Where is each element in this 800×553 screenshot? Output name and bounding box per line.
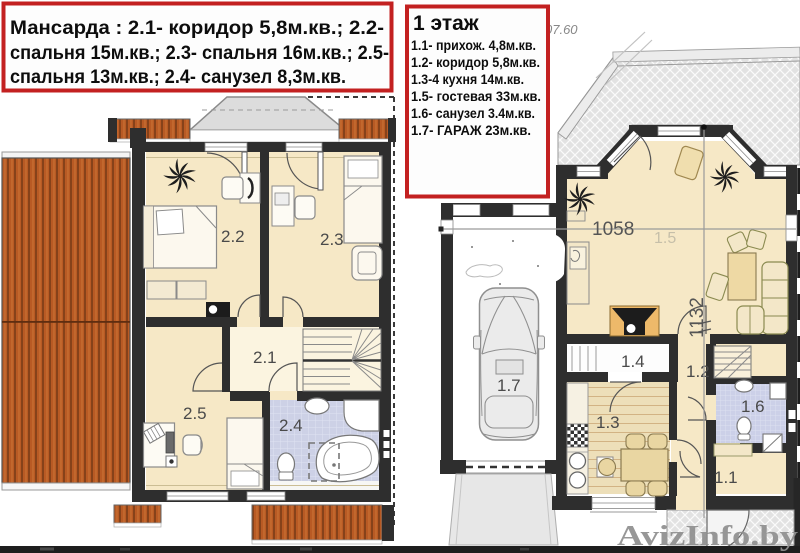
svg-text:2.3: 2.3 xyxy=(320,230,344,249)
svg-text:1.2- коридор 5,8м.кв.: 1.2- коридор 5,8м.кв. xyxy=(411,55,540,70)
svg-text:1.6: 1.6 xyxy=(741,397,765,416)
svg-text:1.1- прихож. 4,8м.кв.: 1.1- прихож. 4,8м.кв. xyxy=(411,38,536,53)
svg-text:2.5: 2.5 xyxy=(183,404,207,423)
svg-text:1 этаж: 1 этаж xyxy=(413,12,480,35)
svg-text:1.1: 1.1 xyxy=(714,468,738,487)
svg-text:2.1: 2.1 xyxy=(253,348,277,367)
svg-text:1.7- ГАРАЖ 23м.кв.: 1.7- ГАРАЖ 23м.кв. xyxy=(411,123,531,138)
svg-text:спальня 15м.кв.; 2.3- спальня: спальня 15м.кв.; 2.3- спальня 16м.кв.; 2… xyxy=(10,43,389,64)
svg-text:1.6- санузел 3.4м.кв.: 1.6- санузел 3.4м.кв. xyxy=(411,106,535,121)
svg-text:1.7: 1.7 xyxy=(497,376,521,395)
svg-text:AvizInfo.by: AvizInfo.by xyxy=(617,521,798,552)
svg-text:1.2: 1.2 xyxy=(686,362,710,381)
svg-text:Мансарда : 2.1- коридор 5,8м.к: Мансарда : 2.1- коридор 5,8м.кв.; 2.2- xyxy=(10,18,384,39)
svg-text:1.3: 1.3 xyxy=(596,413,620,432)
svg-text:1.5: 1.5 xyxy=(654,230,676,247)
svg-text:1132: 1132 xyxy=(687,297,708,338)
svg-text:2.4: 2.4 xyxy=(279,416,303,435)
svg-text:2.2: 2.2 xyxy=(221,227,245,246)
svg-text:1.3-4 кухня 14м.кв.: 1.3-4 кухня 14м.кв. xyxy=(411,72,524,87)
svg-text:1058: 1058 xyxy=(592,219,634,240)
svg-text:1.4: 1.4 xyxy=(621,352,645,371)
svg-text:1.5- гостевая 33м.кв.: 1.5- гостевая 33м.кв. xyxy=(411,89,541,104)
svg-text:спальня 13м.кв.; 2.4- санузел: спальня 13м.кв.; 2.4- санузел 8,3м.кв. xyxy=(10,67,346,88)
